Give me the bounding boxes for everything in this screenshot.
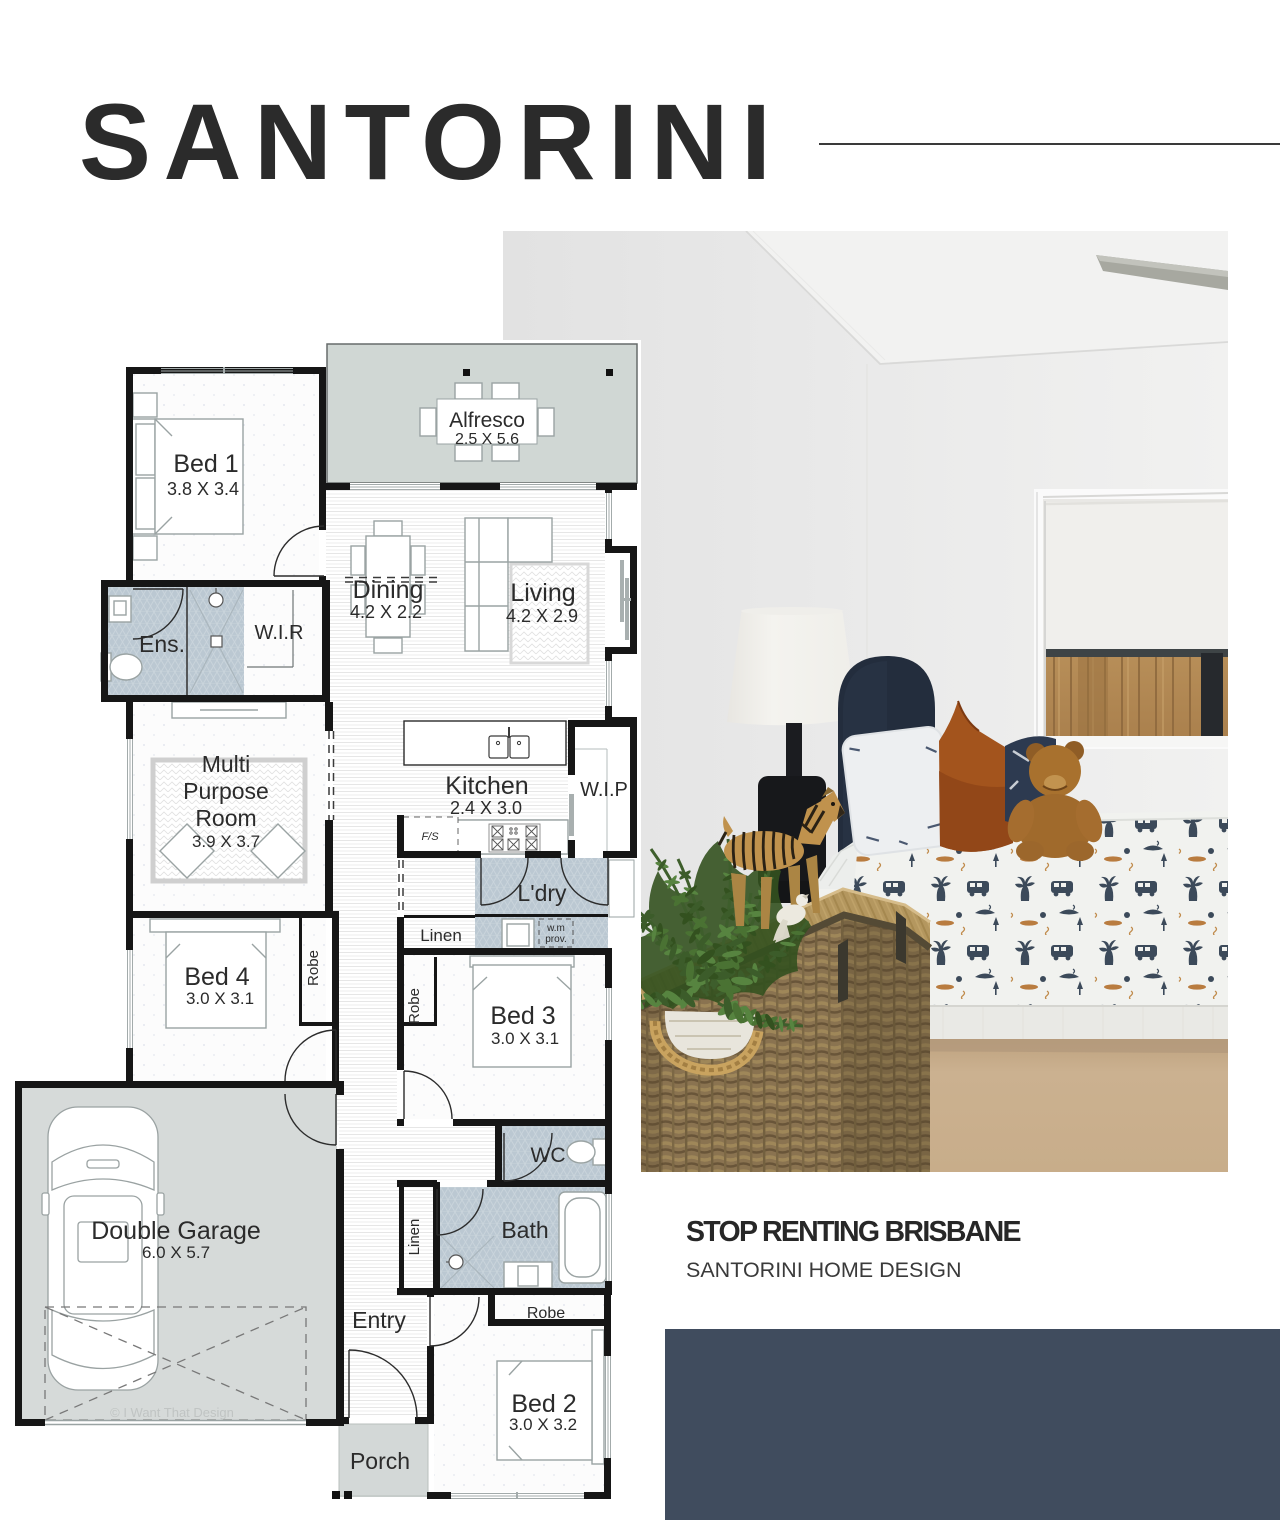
svg-text:3.0 X 3.1: 3.0 X 3.1 (491, 1029, 559, 1048)
svg-text:© I Want That Design: © I Want That Design (110, 1405, 234, 1420)
svg-text:Room: Room (195, 805, 256, 831)
svg-text:2.5 X 5.6: 2.5 X 5.6 (455, 431, 519, 448)
svg-text:Bath: Bath (501, 1217, 548, 1243)
svg-text:Bed 2: Bed 2 (511, 1390, 576, 1418)
svg-text:Living: Living (510, 579, 575, 607)
svg-text:4.2 X 2.2: 4.2 X 2.2 (350, 602, 422, 622)
svg-text:Alfresco: Alfresco (449, 409, 525, 432)
svg-text:3.0 X 3.1: 3.0 X 3.1 (186, 989, 254, 1008)
svg-text:Bed 1: Bed 1 (173, 450, 238, 478)
svg-text:3.9 X 3.7: 3.9 X 3.7 (192, 832, 260, 851)
svg-text:WC: WC (531, 1144, 566, 1167)
svg-text:w.m: w.m (546, 923, 565, 934)
svg-text:Dining: Dining (353, 576, 424, 604)
svg-text:Purpose: Purpose (183, 778, 269, 804)
svg-text:W.I.R: W.I.R (255, 622, 304, 644)
svg-text:Multi: Multi (202, 751, 251, 777)
svg-text:Linen: Linen (420, 926, 462, 945)
svg-text:Kitchen: Kitchen (445, 772, 528, 800)
svg-text:6.0 X 5.7: 6.0 X 5.7 (142, 1243, 210, 1262)
svg-text:3.0 X 3.2: 3.0 X 3.2 (509, 1415, 577, 1434)
svg-text:Robe: Robe (406, 988, 423, 1024)
svg-text:Robe: Robe (527, 1305, 565, 1322)
svg-text:Robe: Robe (305, 950, 322, 986)
svg-text:Porch: Porch (350, 1448, 410, 1474)
svg-text:F/S: F/S (421, 831, 439, 843)
svg-text:Linen: Linen (406, 1219, 423, 1256)
svg-text:L'dry: L'dry (517, 880, 567, 906)
svg-text:3.8 X 3.4: 3.8 X 3.4 (167, 479, 239, 499)
svg-text:prov.: prov. (545, 934, 567, 945)
svg-text:Double Garage: Double Garage (91, 1217, 261, 1245)
svg-text:Bed 3: Bed 3 (490, 1002, 555, 1030)
svg-text:2.4 X 3.0: 2.4 X 3.0 (450, 798, 522, 818)
svg-text:Entry: Entry (352, 1307, 406, 1333)
svg-text:Bed 4: Bed 4 (184, 963, 249, 991)
svg-text:W.I.P: W.I.P (580, 779, 628, 801)
svg-text:Ens.: Ens. (139, 631, 185, 657)
svg-text:4.2 X 2.9: 4.2 X 2.9 (506, 606, 578, 626)
